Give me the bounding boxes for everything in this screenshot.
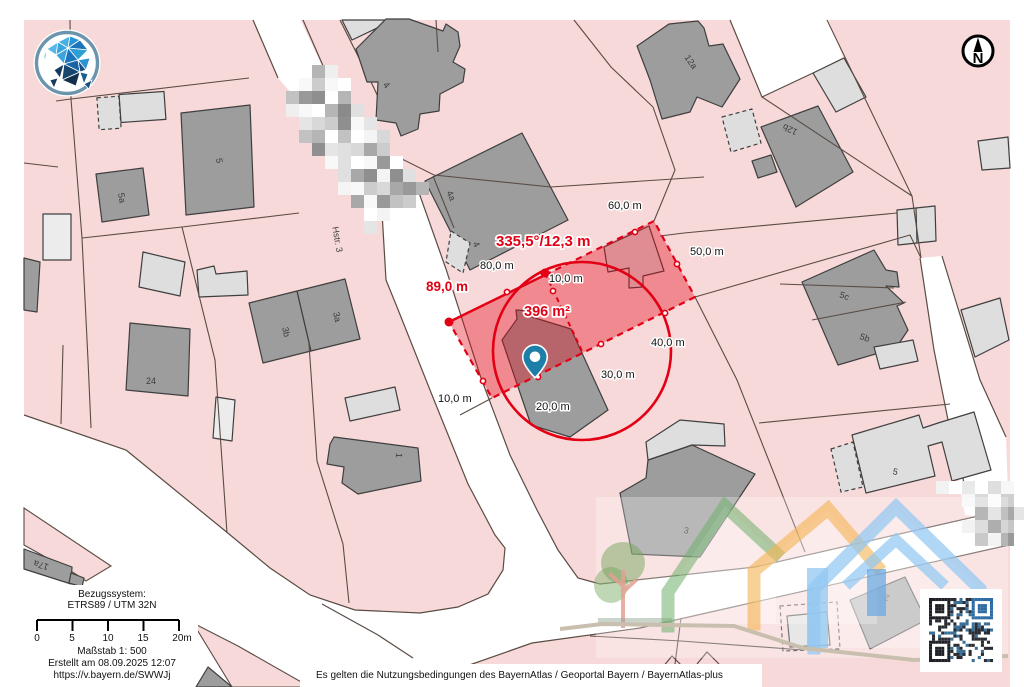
svg-text:5: 5 <box>69 633 75 644</box>
svg-text:Es gelten die Nutzungsbedingun: Es gelten die Nutzungsbedingungen des Ba… <box>316 670 723 681</box>
svg-text:89,0 m: 89,0 m <box>426 279 468 294</box>
svg-text:80,0 m: 80,0 m <box>480 260 514 272</box>
svg-text:335,5°/12,3 m: 335,5°/12,3 m <box>496 233 590 250</box>
svg-text:15: 15 <box>137 633 149 644</box>
svg-text:10,0 m: 10,0 m <box>549 273 583 285</box>
svg-text:5a: 5a <box>116 192 128 204</box>
svg-text:40,0 m: 40,0 m <box>651 337 685 349</box>
svg-text:Bezugssystem:: Bezugssystem: <box>78 589 146 600</box>
svg-text:Erstellt am 08.09.2025 12:07: Erstellt am 08.09.2025 12:07 <box>48 658 176 669</box>
svg-text:60,0 m: 60,0 m <box>608 200 642 212</box>
svg-text:0: 0 <box>34 633 40 644</box>
svg-text:3b: 3b <box>280 326 292 338</box>
svg-text:10,0 m: 10,0 m <box>438 393 472 405</box>
svg-text:30,0 m: 30,0 m <box>601 369 635 381</box>
svg-text:3a: 3a <box>331 311 343 323</box>
svg-text:10: 10 <box>102 633 114 644</box>
svg-text:396 m²: 396 m² <box>524 304 570 320</box>
svg-text:Maßstab 1: 500: Maßstab 1: 500 <box>77 646 147 657</box>
svg-text:N: N <box>973 50 984 67</box>
svg-text:https://v.bayern.de/SWWJj: https://v.bayern.de/SWWJj <box>53 670 170 681</box>
svg-text:1: 1 <box>394 452 404 458</box>
svg-text:ETRS89 / UTM 32N: ETRS89 / UTM 32N <box>68 600 157 611</box>
svg-text:20m: 20m <box>172 633 191 644</box>
svg-text:20,0 m: 20,0 m <box>536 401 570 413</box>
svg-text:50,0 m: 50,0 m <box>690 246 724 258</box>
svg-text:24: 24 <box>146 376 156 386</box>
